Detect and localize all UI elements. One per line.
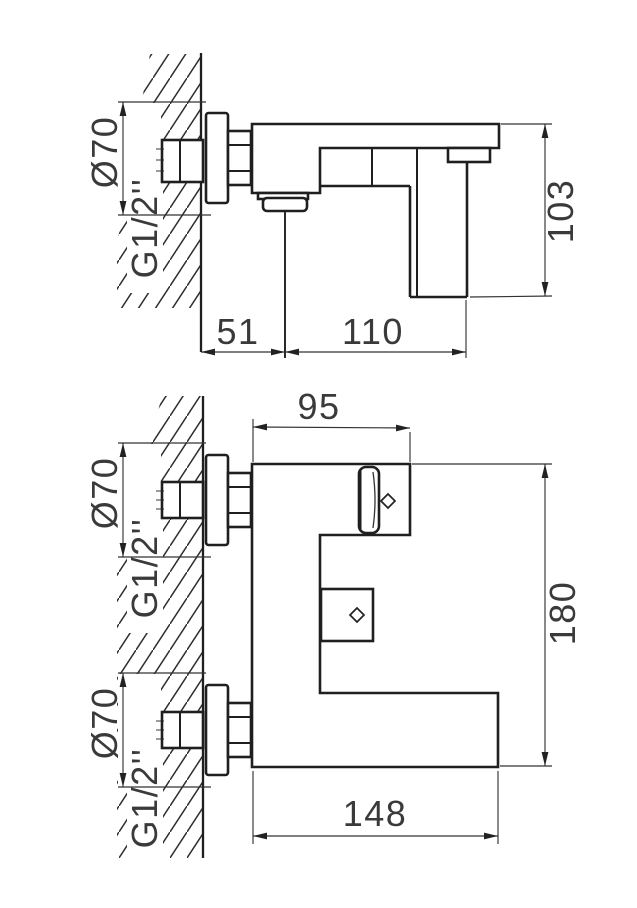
mounting-nut <box>228 703 251 757</box>
spout-aerator <box>263 198 307 211</box>
dim-51-label: 51 <box>216 311 259 352</box>
arrowhead-left <box>253 424 267 431</box>
front-view: Ø70 G1/2'' Ø70 G1/2'' <box>84 386 583 863</box>
mixer-body-front <box>252 464 498 767</box>
handle-hinge <box>448 148 490 162</box>
technical-drawing-page: Ø70 G1/2'' <box>0 0 637 908</box>
technical-drawing: Ø70 G1/2'' <box>0 0 637 908</box>
diameter-label: Ø70 <box>84 116 125 189</box>
arrowhead-right <box>484 833 498 840</box>
escutcheon-plate <box>206 685 228 775</box>
union-body <box>162 482 203 518</box>
mounting-nut <box>228 473 251 527</box>
dimension-110: 110 <box>285 300 466 358</box>
arrowhead-right <box>396 425 410 432</box>
arrowhead-down <box>542 282 549 296</box>
dim-148-label: 148 <box>343 793 408 834</box>
arrowhead-up <box>542 124 549 138</box>
spout <box>258 193 308 358</box>
arrowhead-down <box>542 752 549 766</box>
dim-103-label: 103 <box>540 179 581 244</box>
arrowhead-right <box>271 349 285 356</box>
dimension-line <box>253 427 410 428</box>
mounting-nut <box>228 131 251 185</box>
arrowhead-right <box>452 349 466 356</box>
lever-profile <box>359 467 379 533</box>
thread-label: G1/2'' <box>124 748 165 849</box>
escutcheon-plate <box>206 113 228 203</box>
thread-label: G1/2'' <box>124 518 165 619</box>
arrowhead-left <box>201 349 215 356</box>
arrowhead-left <box>253 833 267 840</box>
escutcheon-plate <box>206 455 228 545</box>
diameter-label: Ø70 <box>84 457 125 530</box>
dim-95-label: 95 <box>297 386 340 427</box>
dim-110-label: 110 <box>342 311 404 352</box>
thread-label: G1/2'' <box>124 178 165 279</box>
dim-180-label: 180 <box>542 581 583 646</box>
handle-lever <box>410 148 467 297</box>
dimension-51: 51 <box>201 311 285 355</box>
extension-line <box>470 296 552 297</box>
dimension-95: 95 <box>253 386 410 462</box>
arrowhead-up <box>542 464 549 478</box>
union-body <box>162 712 203 748</box>
side-view: Ø70 G1/2'' <box>84 53 581 358</box>
arrowhead-left <box>285 349 299 356</box>
dimension-148: 148 <box>253 771 498 844</box>
union-body <box>162 140 203 182</box>
diameter-label: Ø70 <box>84 687 125 760</box>
handle-lever-front <box>359 467 379 533</box>
